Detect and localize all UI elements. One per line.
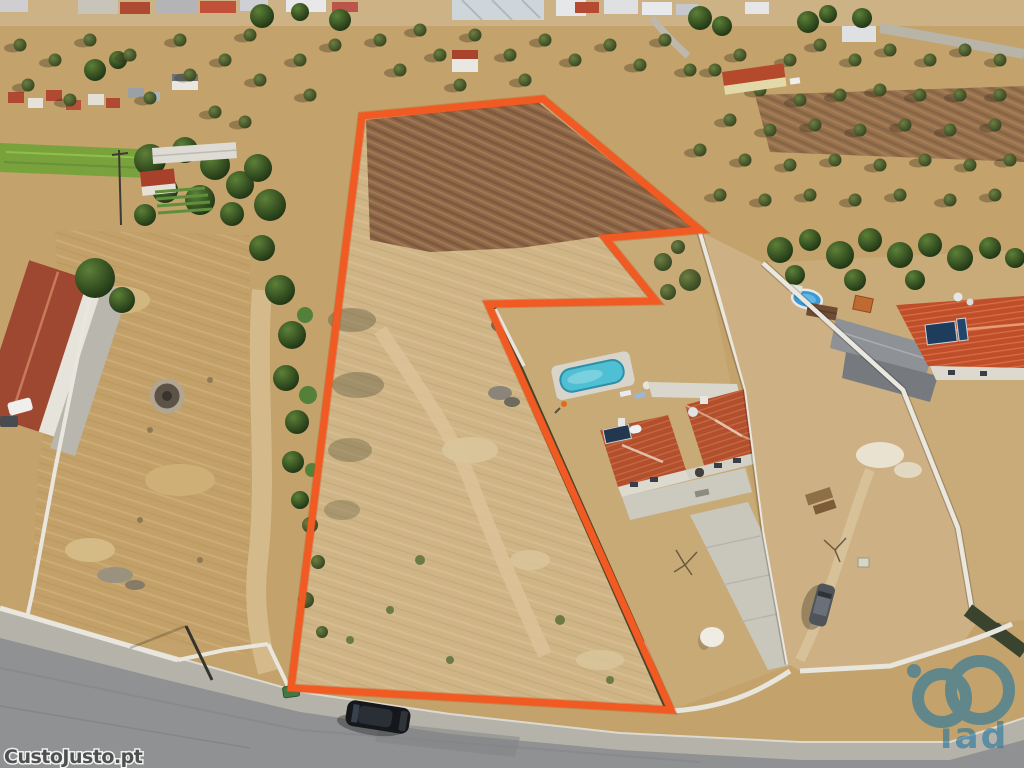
- sand-pile: [856, 442, 904, 468]
- dirt-track: [256, 290, 268, 672]
- aerial-photo-listing: CustoJusto.pt iad: [0, 0, 1024, 768]
- white-house-top-center: [452, 50, 478, 72]
- iad-logo-text: iad: [940, 716, 1008, 757]
- rubble-pile: [97, 567, 133, 583]
- satellite-dish-2: [954, 293, 963, 302]
- manhole: [858, 558, 869, 567]
- custojusto-watermark: CustoJusto.pt: [4, 746, 143, 768]
- orange-container: [853, 295, 874, 312]
- person: [561, 401, 567, 407]
- dark-car-farmhouse: [0, 416, 18, 427]
- stone-well: [152, 381, 182, 411]
- warehouse-building: [452, 0, 544, 20]
- satellite-dish: [688, 407, 698, 417]
- iad-logo-dot: [907, 664, 921, 678]
- aerial-photo: CustoJusto.pt iad: [0, 0, 1024, 768]
